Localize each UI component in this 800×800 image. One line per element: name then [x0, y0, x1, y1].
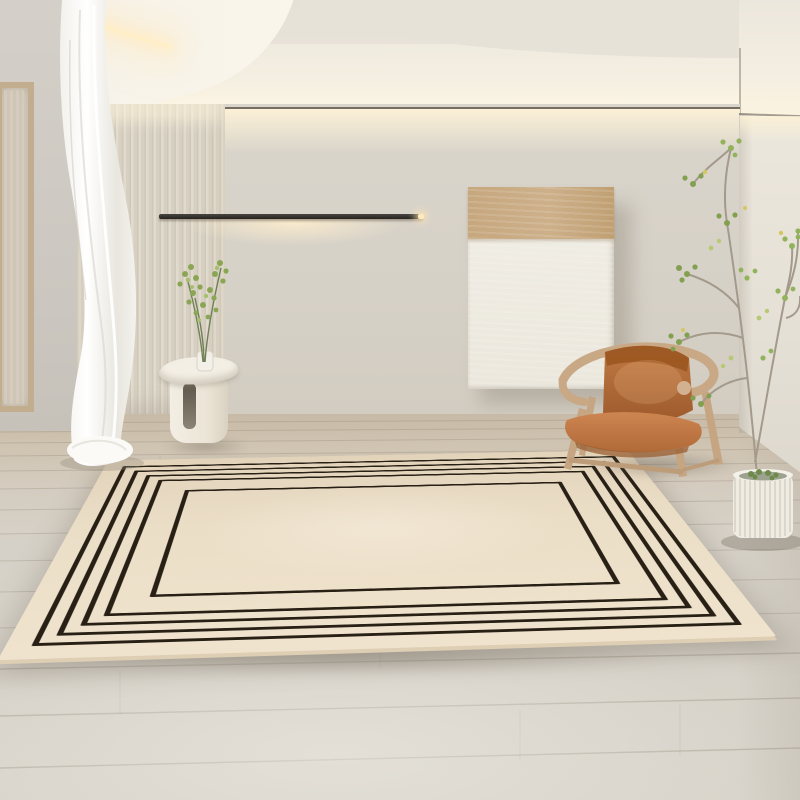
plant-stems	[187, 268, 221, 362]
ceiling-right-section	[739, 0, 800, 115]
side-table-body	[170, 376, 228, 443]
wall-lamp-endcap	[418, 214, 424, 219]
linear-wall-lamp	[159, 214, 423, 219]
planter-pot	[733, 469, 793, 538]
rug-center-field	[156, 483, 614, 594]
sheer-curtain	[10, 0, 150, 475]
small-plant	[165, 250, 245, 375]
curtain-fabric	[60, 0, 136, 466]
tall-potted-plant	[635, 128, 800, 553]
living-room-scene	[0, 0, 800, 800]
side-table-slot	[183, 383, 196, 429]
plant-branches	[679, 148, 800, 476]
